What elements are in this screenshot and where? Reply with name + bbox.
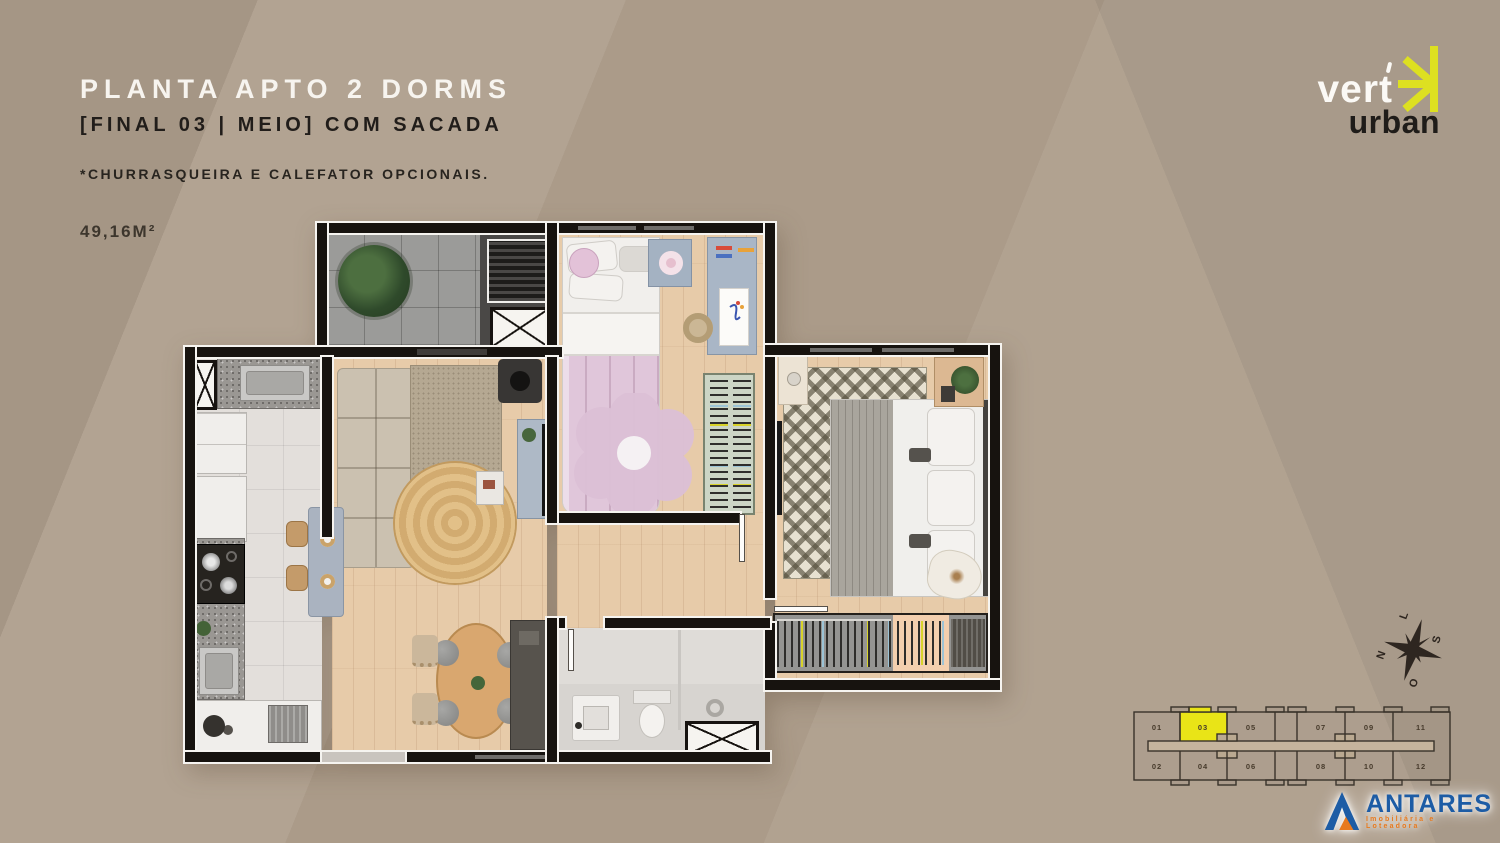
window bbox=[810, 348, 872, 352]
cooktop-stove bbox=[193, 544, 245, 604]
keyplan-unit-label: 01 bbox=[1152, 723, 1162, 732]
unit-area-label: 49,16M² bbox=[80, 222, 156, 242]
bar-stool bbox=[286, 565, 308, 591]
wall bbox=[547, 223, 557, 357]
countertop-appliance bbox=[268, 705, 308, 743]
storage-basket bbox=[951, 619, 985, 667]
desk-chair bbox=[683, 313, 713, 343]
plant-stand bbox=[934, 357, 984, 407]
side-table-white bbox=[476, 471, 504, 505]
window bbox=[578, 226, 636, 230]
room-hall bbox=[557, 513, 765, 628]
keyplan-unit-label: 05 bbox=[1246, 723, 1256, 732]
round-pillow bbox=[569, 248, 599, 278]
developer-name: ANTARES bbox=[1366, 793, 1492, 815]
flower-rug bbox=[560, 393, 710, 515]
wardrobe-bedroom-1 bbox=[703, 373, 755, 515]
wall bbox=[765, 223, 775, 598]
wall bbox=[547, 357, 557, 523]
shower-head bbox=[706, 699, 724, 717]
side-table-dark bbox=[498, 359, 542, 403]
marketing-flyer: PLANTA APTO 2 DORMS [FINAL 03 | MEIO] CO… bbox=[0, 0, 1500, 843]
dining-chair-fringe bbox=[412, 693, 438, 725]
page-title: PLANTA APTO 2 DORMS bbox=[80, 74, 512, 105]
wall bbox=[990, 345, 1000, 690]
nightstand-2 bbox=[778, 355, 808, 405]
keyplan-unit-label: 12 bbox=[1416, 762, 1426, 771]
dining-chair-fringe bbox=[412, 635, 438, 667]
bar-stool bbox=[286, 521, 308, 547]
page-subtitle: [FINAL 03 | MEIO] COM SACADA bbox=[80, 114, 512, 137]
poster bbox=[719, 288, 749, 346]
sideboard bbox=[510, 620, 548, 750]
wall bbox=[185, 347, 562, 357]
brand-name-bottom: urban bbox=[1349, 104, 1440, 141]
bathroom-door-leaf bbox=[569, 630, 573, 670]
shower-glass bbox=[678, 630, 681, 730]
duct-shaft-kitchen bbox=[193, 360, 217, 410]
keyplan-unit-label: 02 bbox=[1152, 762, 1162, 771]
wall bbox=[765, 680, 1000, 690]
keyplan-unit-label: 08 bbox=[1316, 762, 1326, 771]
options-note: *CHURRASQUEIRA E CALEFATOR OPCIONAIS. bbox=[80, 166, 512, 182]
bathroom-wall-band bbox=[557, 628, 765, 684]
bedroom-2-door-leaf bbox=[775, 607, 827, 611]
wall bbox=[185, 752, 322, 762]
wall bbox=[317, 223, 775, 233]
wall bbox=[405, 752, 770, 762]
headboard bbox=[983, 400, 989, 596]
window bbox=[644, 226, 694, 230]
barbecue-grill bbox=[487, 239, 547, 303]
developer-tagline: Imobiliária e Loteadora bbox=[1366, 816, 1492, 830]
window bbox=[475, 755, 545, 759]
wall bbox=[185, 347, 195, 762]
gray-blanket bbox=[831, 400, 893, 596]
floor-plan bbox=[180, 223, 1005, 772]
balcony-sliding-door bbox=[417, 349, 487, 355]
keyplan-unit-label-highlighted: 03 bbox=[1198, 723, 1208, 732]
wall bbox=[605, 618, 770, 628]
wall bbox=[557, 618, 565, 628]
compass-south-label: S bbox=[1430, 635, 1443, 645]
compass-east-label: L bbox=[1398, 610, 1412, 621]
window bbox=[882, 348, 954, 352]
compass-rose: L S N O bbox=[1376, 606, 1450, 694]
entry-door-threshold bbox=[322, 752, 405, 762]
open-closet bbox=[773, 613, 988, 673]
toilet bbox=[633, 690, 671, 704]
wall bbox=[317, 223, 327, 357]
toilet-bowl bbox=[639, 704, 665, 738]
bedroom-1-door-leaf bbox=[740, 515, 744, 561]
wall bbox=[547, 618, 557, 762]
coffee-set bbox=[203, 715, 225, 737]
kitchen-sink-2 bbox=[199, 647, 239, 695]
keyplan-unit-label: 06 bbox=[1246, 762, 1256, 771]
microwave-oven-stack bbox=[193, 412, 247, 474]
wall-tv-bedroom-2 bbox=[777, 421, 782, 515]
duct-shaft-balcony bbox=[490, 307, 550, 349]
plant-large bbox=[338, 245, 410, 317]
tv-console bbox=[517, 419, 549, 519]
desk bbox=[707, 237, 757, 355]
vert-urban-logo: vert urban bbox=[1283, 44, 1448, 139]
keyplan-unit-label: 09 bbox=[1364, 723, 1374, 732]
compass-west-label: O bbox=[1407, 677, 1421, 689]
compass-north-label: N bbox=[1376, 649, 1389, 661]
nightstand-1 bbox=[648, 239, 692, 287]
antares-triangle-icon bbox=[1322, 788, 1362, 834]
wall bbox=[557, 513, 740, 523]
kitchen-sink bbox=[240, 365, 310, 401]
wall-half-kitchen bbox=[322, 357, 332, 537]
keyplan-unit-label: 07 bbox=[1316, 723, 1326, 732]
keyplan-unit-label: 11 bbox=[1416, 723, 1426, 732]
building-key-plan: 01 03 05 07 09 11 02 04 06 08 10 12 bbox=[1131, 704, 1465, 790]
keyplan-unit-label: 10 bbox=[1364, 762, 1374, 771]
bathroom-vanity bbox=[572, 695, 620, 741]
refrigerator bbox=[193, 476, 247, 542]
herb-plant bbox=[196, 621, 211, 636]
header: PLANTA APTO 2 DORMS [FINAL 03 | MEIO] CO… bbox=[80, 74, 512, 182]
antares-logo: ANTARES Imobiliária e Loteadora bbox=[1322, 783, 1492, 839]
keyplan-unit-label: 04 bbox=[1198, 762, 1208, 771]
